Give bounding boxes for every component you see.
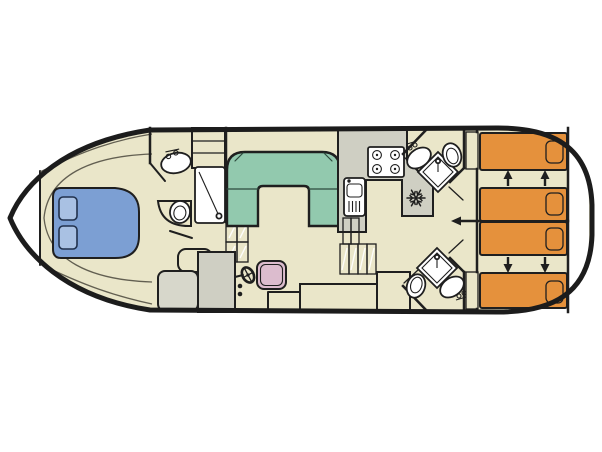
bow-pillow-bottom [59, 226, 77, 249]
helm-side-seat [158, 271, 198, 311]
bottom-bench [300, 284, 377, 311]
galley-sink-icon [344, 178, 365, 216]
bow-deck-wedge [12, 171, 40, 265]
boat-floor-plan-canvas [0, 0, 602, 452]
throttle-knob-1 [238, 284, 243, 289]
stove-icon [368, 147, 404, 177]
fwd-cabinet [192, 128, 225, 168]
helm-seat [257, 261, 286, 289]
corridor-cabinet [377, 272, 410, 311]
bow-pillow-top [59, 197, 77, 220]
throttle-knob-2 [238, 292, 243, 297]
boat-floor-plan [0, 0, 602, 452]
helm-console-cabinet [198, 252, 235, 312]
fwd-shower-icon [195, 167, 225, 223]
